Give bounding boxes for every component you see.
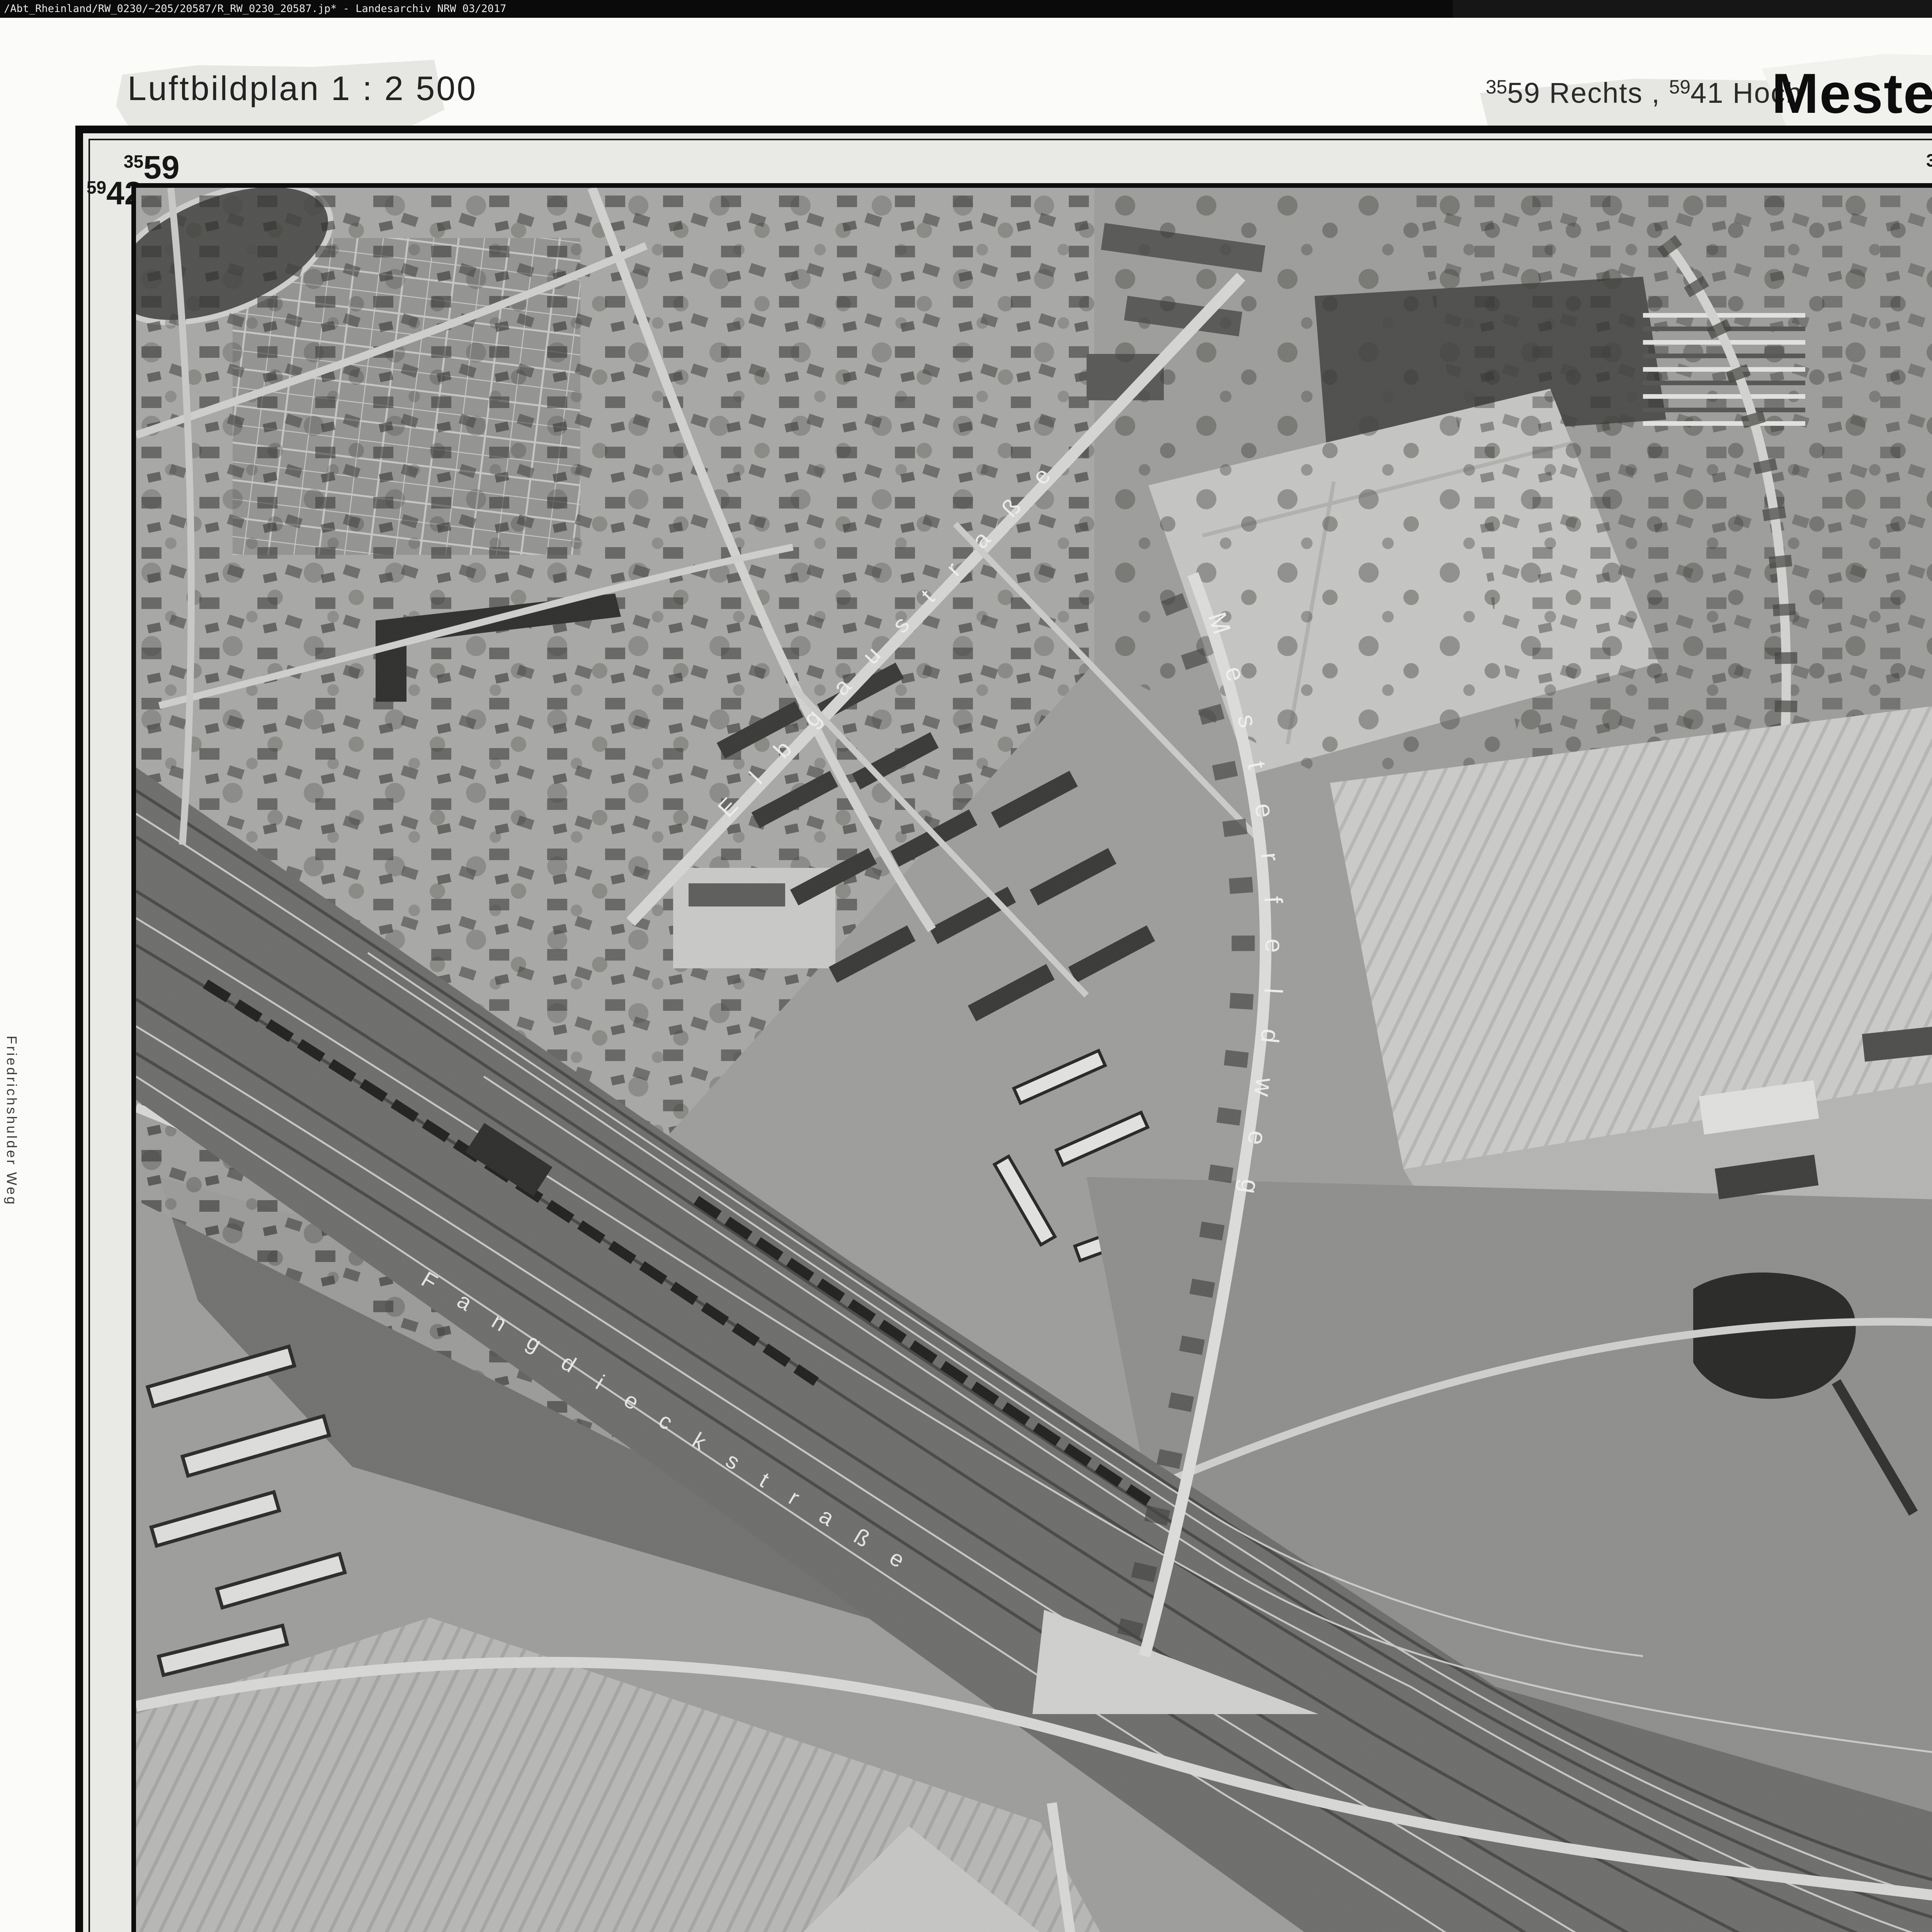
grid-ref-rechts-main: 59 <box>1507 77 1541 109</box>
grid-ref-hoch-sup: 59 <box>1669 76 1691 98</box>
grid-ref-hoch-main: 41 <box>1690 77 1724 109</box>
scan-filename-text: /Abt_Rheinland/RW_0230/~205/20587/R_RW_0… <box>4 3 506 15</box>
edge-label-friedrichshulder-weg: Friedrichshulder Weg <box>3 1028 20 1214</box>
grid-ref-rechts-sup: 35 <box>1486 76 1507 98</box>
grid-ref-rechts-word: Rechts , <box>1541 77 1669 109</box>
scan-header-bar: /Abt_Rheinland/RW_0230/~205/20587/R_RW_0… <box>0 0 1932 18</box>
scan-header-bar-segment <box>1453 0 1932 18</box>
grid-reference: 3559 Rechts , 5941 Hoch <box>1486 76 1803 109</box>
film-grain-overlay <box>136 188 1932 1932</box>
map-sheet-page: { "scan_bar": { "filename_line": "/Abt_R… <box>0 0 1932 1932</box>
aerial-photo: E l b g a u s t r a ß e M e s t e r f e … <box>131 183 1932 1932</box>
aerial-photo-canvas: E l b g a u s t r a ß e M e s t e r f e … <box>136 188 1932 1932</box>
grid-corner-top-right-top: 3560 <box>1926 148 1932 185</box>
plan-scale-label: Luftbildplan 1 : 2 500 <box>128 69 477 108</box>
sheet-title: Mesterfeld <box>1772 61 1932 126</box>
